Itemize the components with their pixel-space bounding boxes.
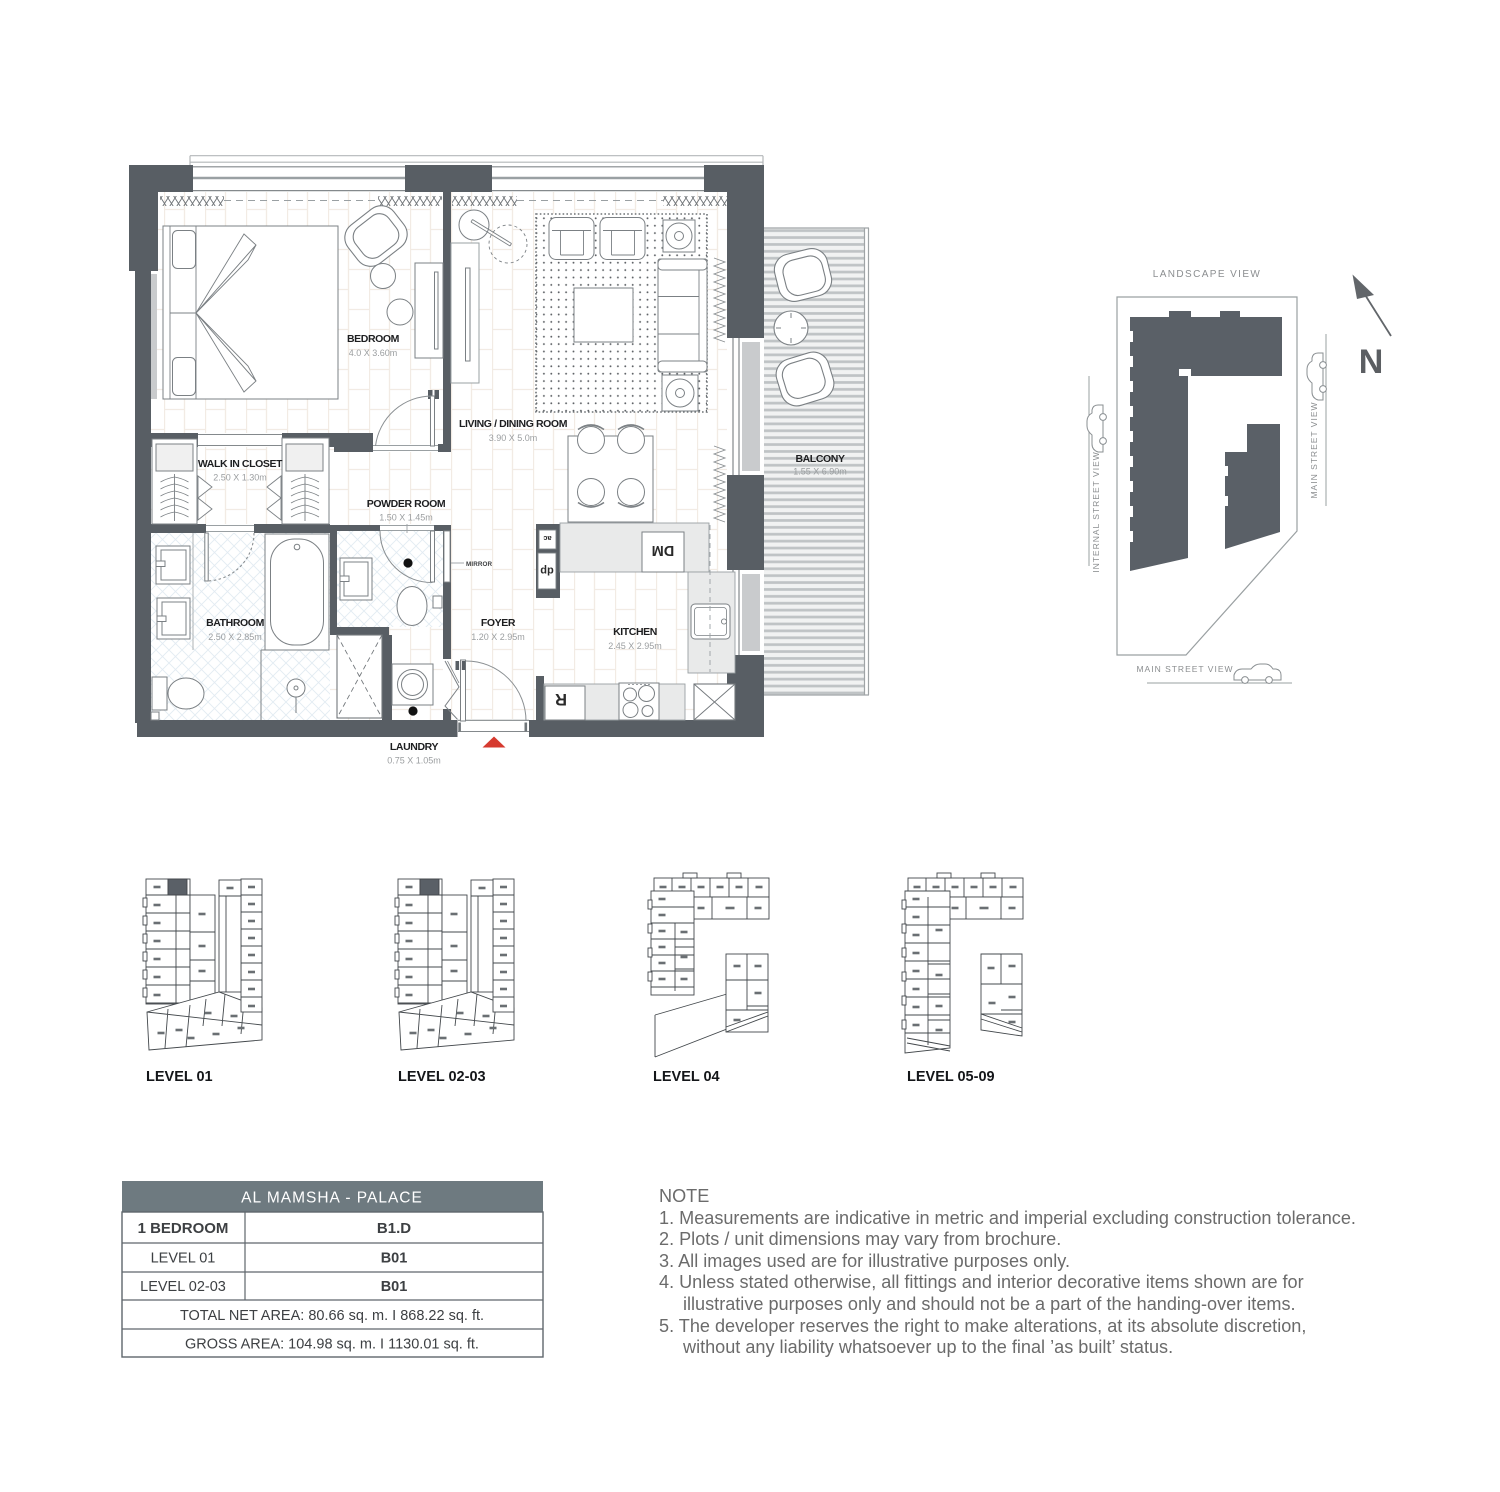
svg-text:0.75 X 1.05m: 0.75 X 1.05m (387, 756, 441, 766)
svg-text:LEVEL 01: LEVEL 01 (151, 1251, 216, 1267)
svg-text:2.50 X 2.85m: 2.50 X 2.85m (208, 632, 262, 642)
svg-text:LEVEL 02-03: LEVEL 02-03 (140, 1279, 226, 1295)
svg-text:FOYER: FOYER (481, 617, 516, 629)
svg-text:3.90 X 5.0m: 3.90 X 5.0m (489, 433, 538, 443)
svg-text:B01: B01 (381, 1251, 408, 1267)
svg-text:BALCONY: BALCONY (795, 453, 845, 465)
svg-text:MAIN STREET VIEW: MAIN STREET VIEW (1136, 664, 1233, 674)
svg-text:2.50 X 1.30m: 2.50 X 1.30m (213, 473, 267, 483)
svg-text:4.0 X 3.60m: 4.0 X 3.60m (349, 348, 398, 358)
svg-text:1.50 X 1.45m: 1.50 X 1.45m (379, 513, 433, 523)
svg-text:POWDER ROOM: POWDER ROOM (367, 498, 446, 510)
svg-text:AL MAMSHA - PALACE: AL MAMSHA - PALACE (241, 1190, 423, 1207)
svg-text:LEVEL 01: LEVEL 01 (146, 1069, 213, 1085)
svg-text:LIVING / DINING ROOM: LIVING / DINING ROOM (459, 418, 568, 430)
svg-text:INTERNAL STREET VIEW: INTERNAL STREET VIEW (1091, 451, 1101, 573)
svg-text:BEDROOM: BEDROOM (347, 333, 400, 345)
svg-text:1 BEDROOM: 1 BEDROOM (138, 1220, 229, 1237)
svg-text:dp: dp (540, 565, 554, 577)
svg-text:LEVEL 04: LEVEL 04 (653, 1069, 720, 1085)
svg-text:MIRROR: MIRROR (466, 561, 492, 568)
svg-text:N: N (1359, 343, 1384, 381)
svg-text:MAIN STREET VIEW: MAIN STREET VIEW (1309, 401, 1319, 498)
svg-text:R: R (555, 690, 567, 708)
svg-text:1.55 X 6.90m: 1.55 X 6.90m (793, 467, 847, 477)
svg-text:LEVEL 02-03: LEVEL 02-03 (398, 1069, 486, 1085)
svg-text:LEVEL 05-09: LEVEL 05-09 (907, 1069, 995, 1085)
svg-text:ac: ac (543, 534, 551, 543)
svg-text:TOTAL NET AREA: 80.66 sq. m. I: TOTAL NET AREA: 80.66 sq. m. I 868.22 sq… (180, 1308, 484, 1324)
svg-text:DM: DM (652, 542, 675, 558)
svg-text:LAUNDRY: LAUNDRY (390, 741, 439, 753)
svg-text:B1.D: B1.D (377, 1220, 411, 1237)
svg-text:BATHROOM: BATHROOM (206, 617, 265, 629)
svg-text:B01: B01 (381, 1279, 408, 1295)
svg-text:1.20 X 2.95m: 1.20 X 2.95m (471, 632, 525, 642)
svg-text:WALK IN CLOSET: WALK IN CLOSET (198, 458, 283, 470)
svg-text:LANDSCAPE VIEW: LANDSCAPE VIEW (1153, 269, 1262, 280)
svg-text:2.45 X 2.95m: 2.45 X 2.95m (608, 641, 662, 651)
svg-text:GROSS AREA: 104.98 sq. m. I: GROSS AREA: 104.98 sq. m. I 1130.01 sq. … (185, 1337, 479, 1353)
svg-text:KITCHEN: KITCHEN (613, 626, 657, 638)
